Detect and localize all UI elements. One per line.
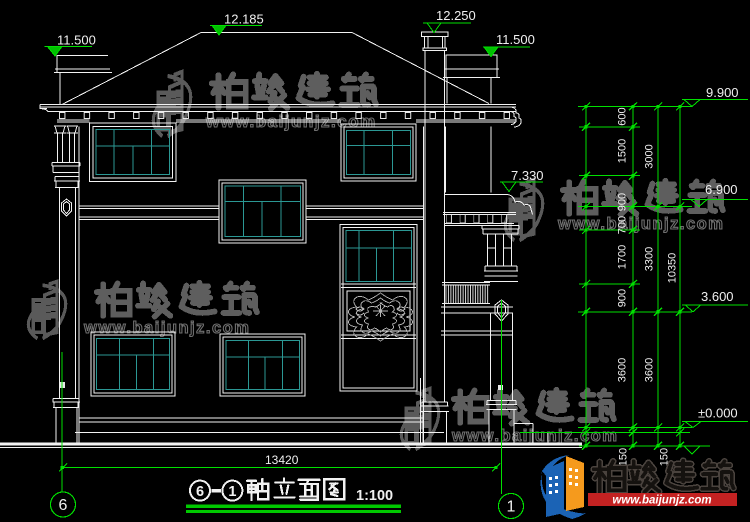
svg-text:3000: 3000: [644, 144, 656, 168]
svg-text:3600: 3600: [644, 358, 656, 382]
svg-text:600: 600: [617, 107, 629, 125]
svg-text:±0.000: ±0.000: [698, 406, 738, 421]
svg-text:3600: 3600: [617, 358, 629, 382]
svg-text:6.900: 6.900: [705, 182, 738, 197]
svg-text:1: 1: [228, 484, 236, 500]
svg-text:900: 900: [617, 193, 629, 211]
svg-text:1:100: 1:100: [356, 488, 393, 504]
svg-text:700: 700: [617, 216, 629, 234]
svg-text:www.baijunjz.com: www.baijunjz.com: [451, 427, 618, 445]
svg-text:12.250: 12.250: [436, 8, 476, 23]
svg-text:13420: 13420: [265, 453, 299, 467]
svg-text:www.baijunjz.com: www.baijunjz.com: [612, 495, 711, 507]
svg-text:1: 1: [507, 499, 516, 516]
svg-text:12.185: 12.185: [224, 12, 264, 27]
svg-text:7.330: 7.330: [511, 168, 544, 183]
svg-text:3.600: 3.600: [701, 289, 734, 304]
svg-text:9.900: 9.900: [706, 85, 739, 100]
svg-text:1500: 1500: [617, 139, 629, 163]
svg-text:11.500: 11.500: [57, 33, 96, 48]
svg-text:1700: 1700: [617, 245, 629, 269]
svg-text:6: 6: [196, 484, 204, 500]
svg-text:150: 150: [618, 448, 630, 466]
svg-text:900: 900: [617, 289, 629, 307]
svg-text:11.500: 11.500: [496, 32, 535, 47]
svg-text:6: 6: [59, 497, 68, 514]
svg-text:3300: 3300: [644, 247, 656, 271]
svg-text:10350: 10350: [667, 253, 679, 284]
